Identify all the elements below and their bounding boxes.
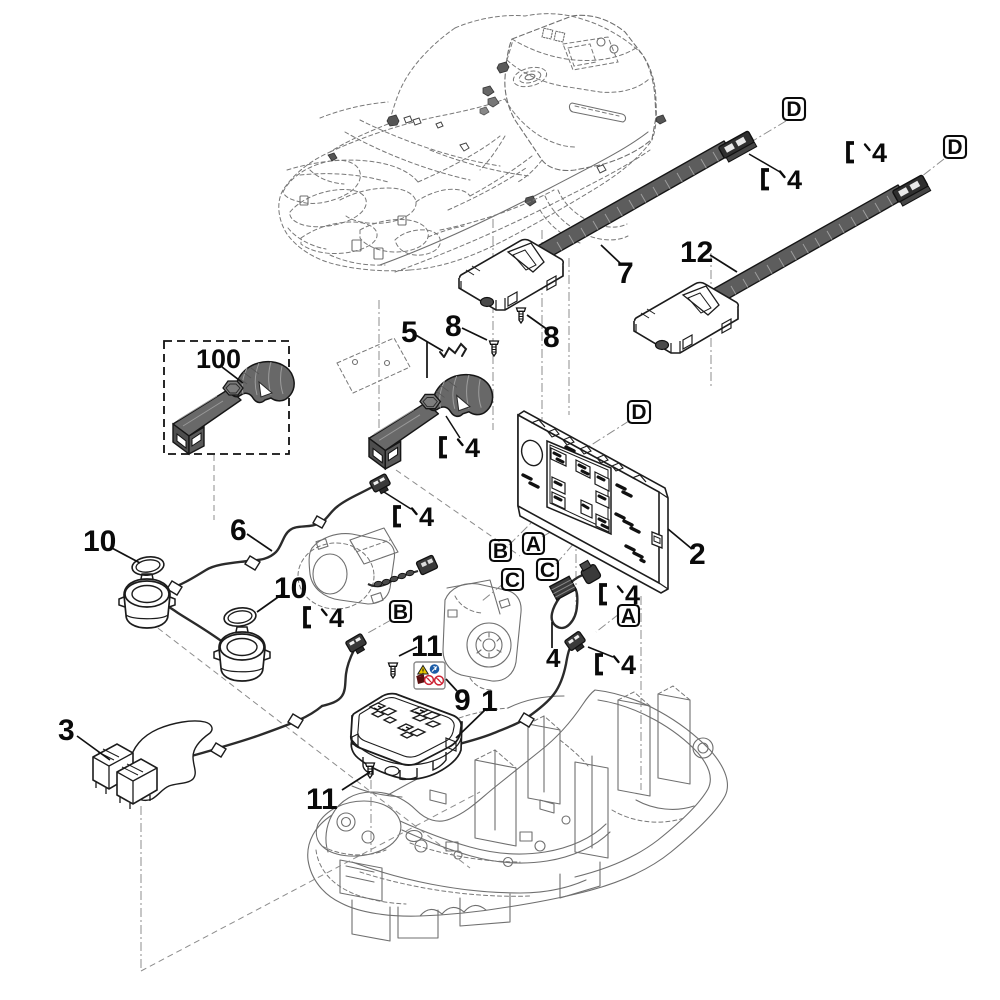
- svg-text:11: 11: [306, 783, 338, 816]
- svg-text:3: 3: [58, 714, 75, 747]
- svg-text:10: 10: [274, 572, 307, 605]
- svg-text:9: 9: [454, 684, 471, 717]
- svg-text:D: D: [947, 136, 962, 159]
- svg-text:A: A: [526, 533, 541, 556]
- svg-text:A: A: [621, 605, 636, 628]
- svg-text:D: D: [786, 98, 801, 121]
- svg-text:1: 1: [481, 685, 498, 718]
- svg-text:8: 8: [445, 310, 462, 343]
- svg-text:C: C: [540, 559, 555, 582]
- svg-text:C: C: [505, 569, 520, 592]
- svg-text:B: B: [493, 540, 508, 563]
- svg-text:10: 10: [83, 525, 116, 558]
- svg-text:B: B: [393, 601, 408, 624]
- svg-text:100: 100: [196, 344, 241, 374]
- svg-text:6: 6: [230, 514, 247, 547]
- svg-text:7: 7: [617, 257, 634, 290]
- svg-text:8: 8: [543, 321, 560, 354]
- svg-text:4: 4: [546, 643, 561, 673]
- svg-text:11: 11: [411, 630, 443, 663]
- svg-text:D: D: [631, 401, 646, 424]
- svg-text:5: 5: [401, 316, 418, 349]
- svg-text:12: 12: [680, 236, 713, 269]
- svg-text:2: 2: [689, 538, 706, 571]
